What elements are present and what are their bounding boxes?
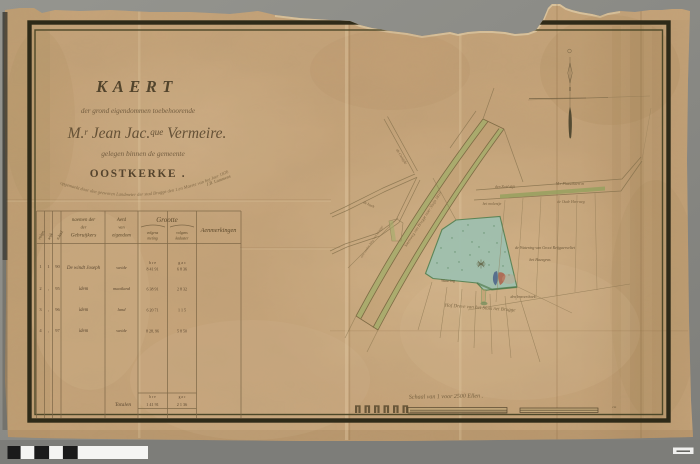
svg-text:b r e: b r e bbox=[149, 395, 156, 399]
svg-text:96: 96 bbox=[55, 307, 60, 312]
svg-text:volgens: volgens bbox=[147, 231, 159, 235]
svg-text:van: van bbox=[118, 225, 125, 230]
svg-text:eigendom: eigendom bbox=[112, 234, 131, 239]
svg-text:der: der bbox=[81, 225, 87, 230]
svg-text:KAERT: KAERT bbox=[95, 77, 178, 96]
svg-text:1: 1 bbox=[39, 264, 41, 269]
svg-text:het Hazegras: het Hazegras bbox=[529, 257, 551, 262]
svg-text:idem: idem bbox=[79, 287, 89, 292]
svg-text:de Oude Heerweg: de Oude Heerweg bbox=[557, 200, 585, 204]
svg-text:Gebruijkers: Gebruijkers bbox=[71, 233, 97, 239]
svg-text:95: 95 bbox=[55, 286, 60, 291]
svg-text:de Watering van Groot Reijgaer: de Watering van Groot Reijgaersvliet bbox=[515, 245, 576, 250]
svg-text:1m: 1m bbox=[612, 405, 617, 409]
svg-text:maailand: maailand bbox=[113, 286, 131, 291]
svg-text:M.r Jean Jac.que Vermeire.: M.r Jean Jac.que Vermeire. bbox=[67, 125, 227, 142]
svg-text:kadaster: kadaster bbox=[175, 237, 189, 241]
svg-text:weide: weide bbox=[116, 328, 127, 333]
svg-text:97: 97 bbox=[55, 328, 60, 333]
svg-text:6 20 71: 6 20 71 bbox=[147, 308, 159, 313]
svg-text:Aerd: Aerd bbox=[116, 218, 127, 223]
svg-text:2 1 36: 2 1 36 bbox=[177, 402, 187, 407]
svg-text:Watering: Watering bbox=[441, 279, 455, 283]
svg-text:M.r Plasschaert m: M.r Plasschaert m bbox=[555, 182, 584, 186]
svg-text:1: 1 bbox=[47, 264, 49, 269]
svg-text:De windt Joseph: De windt Joseph bbox=[66, 266, 101, 271]
svg-text:het molentje: het molentje bbox=[483, 202, 502, 206]
svg-text:b r e: b r e bbox=[149, 260, 156, 265]
svg-text:den braven hoek .: den braven hoek . bbox=[511, 295, 538, 299]
svg-text:5 8 50: 5 8 50 bbox=[177, 329, 187, 334]
svg-text:Grootte: Grootte bbox=[156, 216, 178, 224]
svg-text:6 8 36: 6 8 36 bbox=[177, 267, 187, 272]
svg-text:g a c: g a c bbox=[179, 395, 186, 399]
svg-text:Totalen: Totalen bbox=[115, 402, 132, 408]
svg-text:idem: idem bbox=[79, 308, 89, 313]
svg-text:volgens: volgens bbox=[176, 231, 188, 235]
svg-text:g a c: g a c bbox=[178, 260, 186, 265]
svg-text:8 41 91: 8 41 91 bbox=[147, 267, 159, 272]
svg-text:gelegen binnen de gemeente: gelegen binnen de gemeente bbox=[101, 149, 185, 158]
svg-text:den Zuid dijk: den Zuid dijk bbox=[495, 185, 515, 189]
svg-text:6 38 91: 6 38 91 bbox=[147, 287, 159, 292]
svg-text:land: land bbox=[117, 307, 126, 312]
svg-text:idem: idem bbox=[79, 329, 89, 334]
svg-text:OOSTKERKE .: OOSTKERKE . bbox=[90, 168, 187, 180]
svg-text:Aenmerkingen: Aenmerkingen bbox=[200, 227, 237, 234]
svg-text:naemen der: naemen der bbox=[72, 218, 96, 223]
svg-text:1 41 91: 1 41 91 bbox=[146, 402, 159, 407]
svg-text:2 8 32: 2 8 32 bbox=[177, 287, 187, 292]
svg-text:2: 2 bbox=[39, 286, 41, 291]
svg-text:meting: meting bbox=[147, 237, 157, 241]
svg-text:90: 90 bbox=[55, 264, 60, 269]
svg-text:weide: weide bbox=[116, 265, 127, 270]
svg-text:1 1 5: 1 1 5 bbox=[178, 308, 186, 313]
svg-text:der grond eigendommen toebehoo: der grond eigendommen toebehoorende bbox=[81, 107, 196, 115]
